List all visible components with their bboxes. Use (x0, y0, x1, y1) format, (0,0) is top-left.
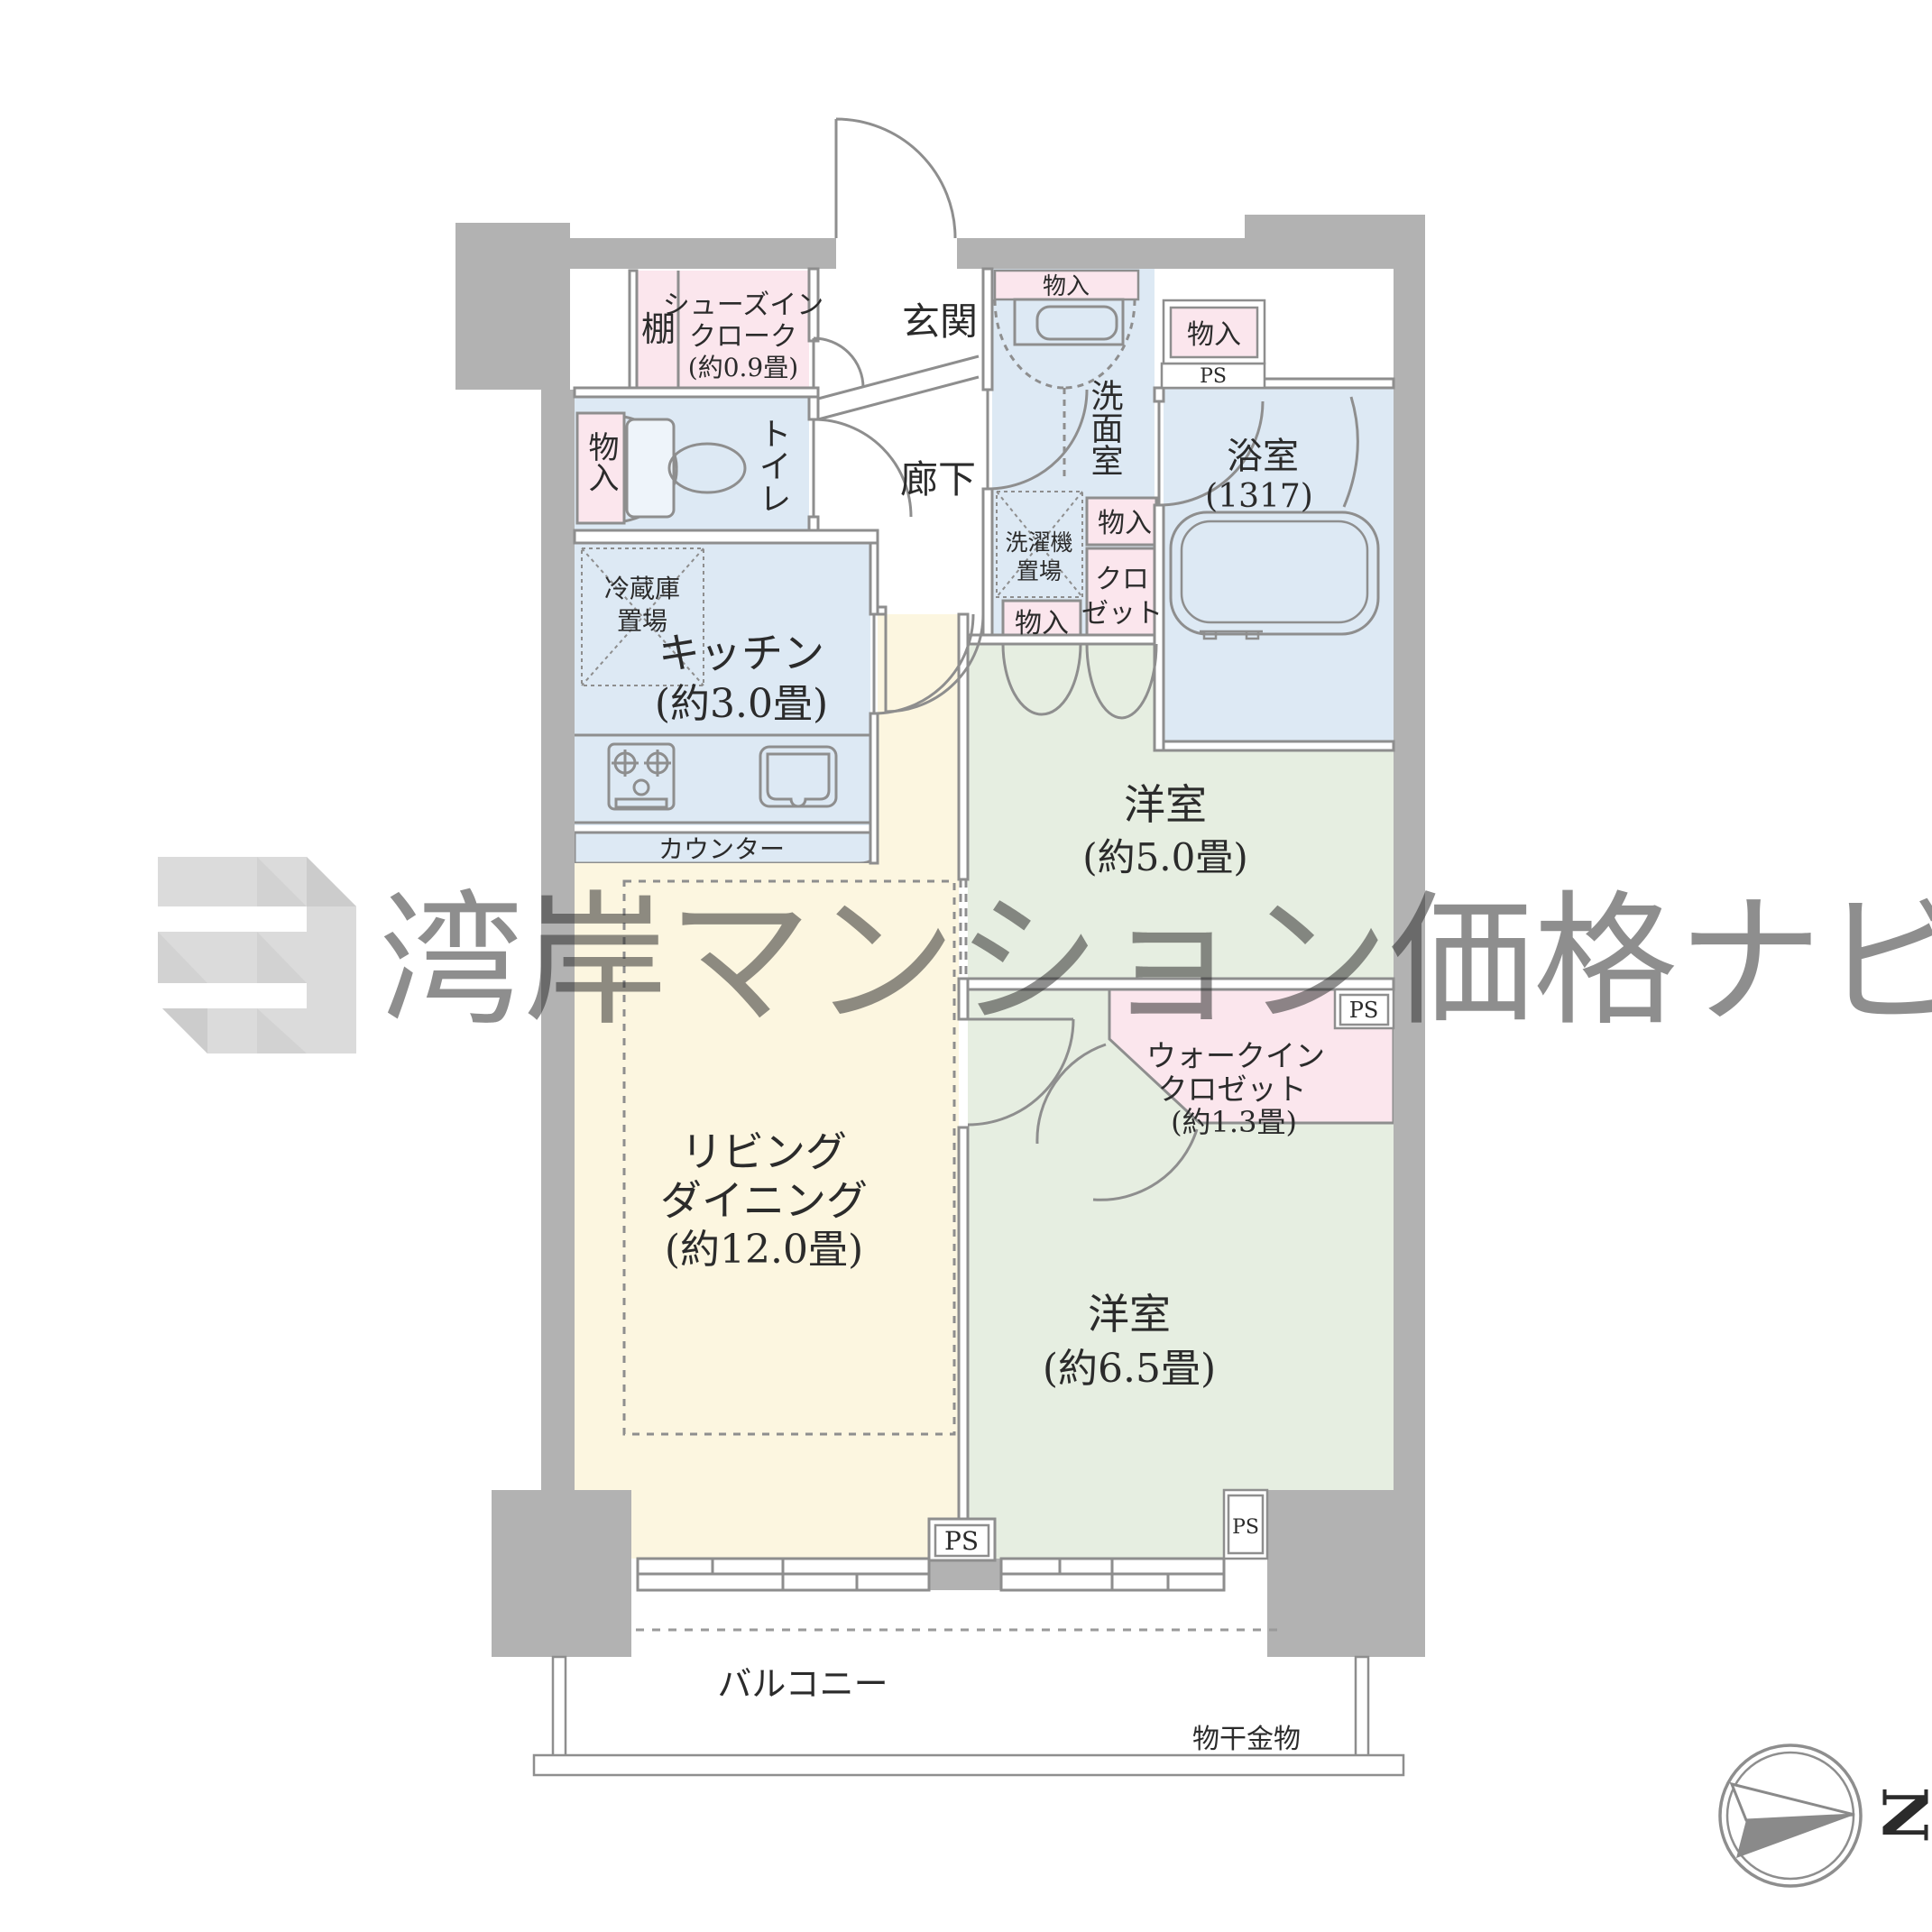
label-living-1: リビング (681, 1127, 847, 1176)
sic-door-icon (814, 338, 863, 388)
floorplan-page: 棚 シューズイン クローク (約0.9畳) 玄関 廊下 トイレ 物入 冷蔵庫 置… (0, 0, 1932, 1932)
label-living-2: ダイニング (660, 1176, 868, 1225)
label-living-3: (約12.0畳) (665, 1227, 863, 1273)
wall-top-right-band (957, 238, 1245, 269)
label-balcony: バルコニー (717, 1664, 888, 1704)
label-kitchen-2: (約3.0畳) (655, 681, 828, 727)
label-laundry-1: 洗濯機 (1005, 529, 1072, 556)
wall-kitchen-right-b (870, 713, 878, 863)
entrance-step-lines (818, 356, 979, 419)
wall-toilet-bottom (575, 530, 878, 543)
label-toilet-storage: 物入 (583, 431, 619, 492)
label-storage-mid: 物入 (1098, 508, 1152, 539)
label-bedroom5-2: (約5.0畳) (1082, 835, 1248, 879)
label-bathroom: 浴室 (1227, 436, 1299, 477)
wall-toilet-right-a (809, 397, 818, 419)
label-kitchen-1: キッチン (658, 629, 824, 677)
entrance-door-icon (836, 119, 955, 238)
wall-washroom-left-b (983, 489, 992, 635)
balcony-slab (534, 1755, 1403, 1775)
label-bathroom-size: (1317) (1205, 478, 1313, 515)
label-washroom: 洗面室 (1086, 379, 1123, 476)
watermark-text: 湾岸マンション価格ナビ (379, 877, 1932, 1045)
wall-under-ps1 (929, 1559, 1001, 1590)
label-toilet: トイレ (754, 417, 791, 514)
label-fridge-1: 冷蔵庫 (604, 574, 680, 603)
label-bedroom5-1: 洋室 (1124, 780, 1207, 829)
label-closet-1: クロ (1095, 564, 1149, 595)
label-sic-2: クローク (689, 321, 797, 353)
label-sic-1: シューズイン (663, 290, 824, 321)
label-wic-2: クロゼット (1158, 1072, 1307, 1107)
watermark: 湾岸マンション価格ナビ (158, 857, 1932, 1053)
pillar-bottom-right (1267, 1490, 1425, 1657)
label-bedroom65-2: (約6.5畳) (1043, 1346, 1216, 1392)
label-bedroom65-1: 洋室 (1088, 1290, 1171, 1339)
toilet-door-icon (814, 419, 911, 517)
toilet-tank-icon (627, 419, 674, 517)
label-storage-left: 物入 (1015, 608, 1069, 639)
label-ps-washroom: PS (1200, 365, 1227, 388)
wall-bath-left-a (1155, 388, 1164, 401)
brand-logo (158, 857, 356, 1053)
compass-north-icon: N (1720, 1745, 1932, 1886)
wall-corridor-ld-stub (878, 607, 886, 614)
label-ps-bottom2: PS (1232, 1516, 1259, 1539)
label-washroom-top-storage: 物入 (1043, 273, 1090, 300)
wall-washroom-left-a (983, 269, 992, 390)
label-entrance: 玄関 (902, 299, 978, 344)
label-sic-3: (約0.9畳) (688, 353, 798, 382)
label-closet-2: ゼット (1081, 598, 1163, 630)
wall-kitchen-right-a (870, 543, 878, 614)
balcony-side-right (1356, 1657, 1368, 1756)
label-ps-bottom1: PS (944, 1526, 979, 1556)
pillar-bottom-left (492, 1490, 631, 1657)
label-wic-3: (約1.3畳) (1171, 1105, 1297, 1139)
wall-ld-bedroom-a (959, 614, 968, 879)
label-corridor: 廊下 (900, 457, 976, 501)
label-storage-top-right: 物入 (1187, 319, 1241, 351)
label-laundry-2: 置場 (1017, 558, 1062, 584)
pillar-top-left (455, 223, 570, 390)
label-counter: カウンター (658, 834, 785, 864)
balcony-side-left (553, 1657, 566, 1756)
compass-north-letter: N (1868, 1787, 1932, 1843)
wall-sic-left (630, 271, 637, 390)
label-drying: 物干金物 (1192, 1724, 1301, 1755)
wall-top-left-band (570, 238, 836, 269)
wall-toilet-top (575, 388, 818, 397)
wall-ld-bedroom-c (959, 1127, 968, 1519)
wall-bath-bottom (1164, 741, 1394, 750)
closet-box (1087, 548, 1156, 644)
pillar-top-right (1245, 215, 1425, 269)
